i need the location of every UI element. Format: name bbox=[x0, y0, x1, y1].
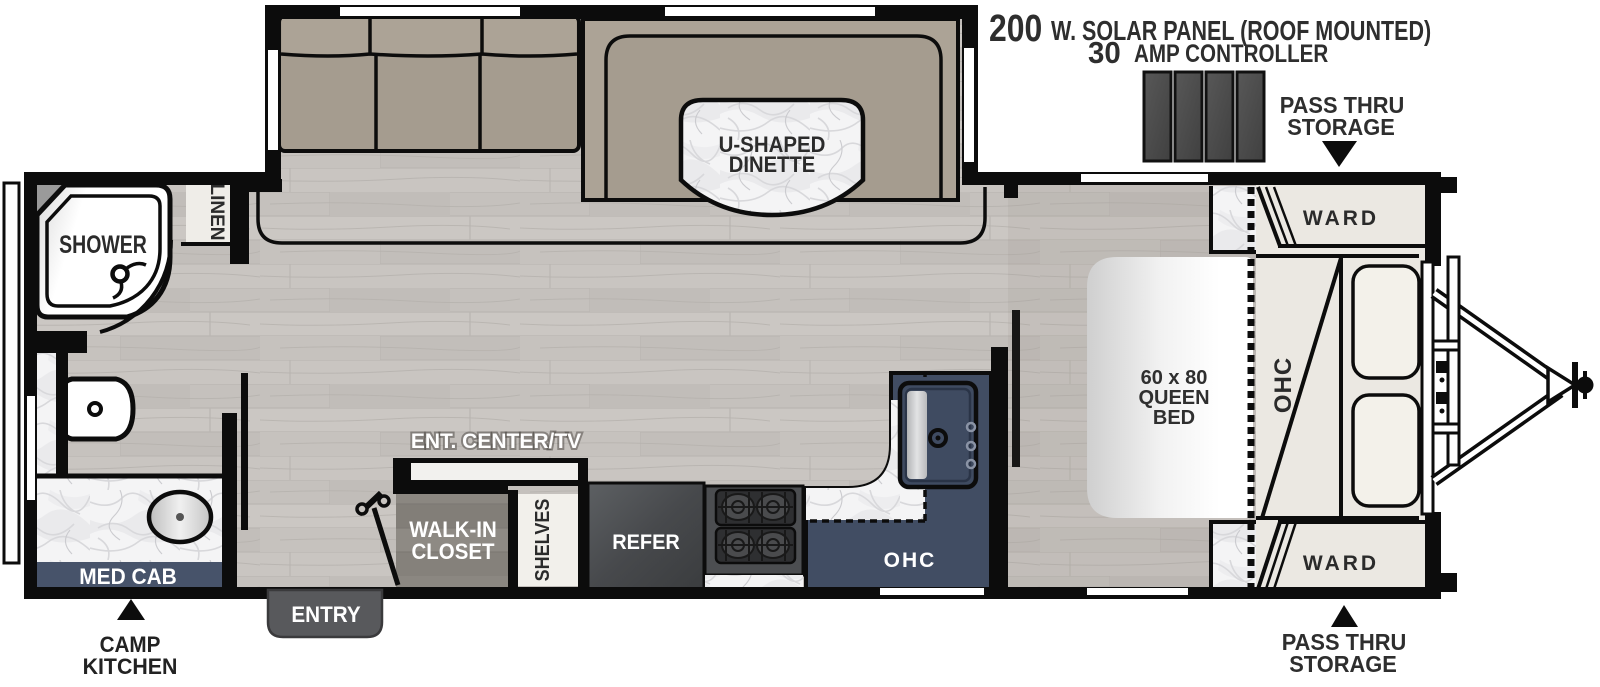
svg-text:AMP CONTROLLER: AMP CONTROLLER bbox=[1134, 39, 1329, 67]
svg-text:CLOSET: CLOSET bbox=[412, 539, 495, 564]
svg-text:MED CAB: MED CAB bbox=[79, 565, 176, 590]
svg-text:REFER: REFER bbox=[612, 531, 680, 555]
svg-text:200: 200 bbox=[989, 7, 1042, 49]
svg-text:SHELVES: SHELVES bbox=[532, 499, 554, 582]
svg-text:KITCHEN: KITCHEN bbox=[83, 654, 178, 679]
svg-text:OHC: OHC bbox=[1270, 357, 1297, 413]
svg-text:OHC: OHC bbox=[884, 549, 937, 572]
svg-text:SHOWER: SHOWER bbox=[59, 231, 147, 259]
svg-text:ENT. CENTER/TV: ENT. CENTER/TV bbox=[411, 430, 581, 453]
svg-text:STORAGE: STORAGE bbox=[1287, 114, 1395, 140]
svg-text:ENTRY: ENTRY bbox=[291, 602, 360, 627]
svg-text:BED: BED bbox=[1153, 407, 1195, 429]
svg-text:LINEN: LINEN bbox=[206, 184, 227, 241]
svg-text:DINETTE: DINETTE bbox=[729, 153, 816, 177]
svg-text:STORAGE: STORAGE bbox=[1289, 651, 1397, 677]
svg-text:30: 30 bbox=[1088, 36, 1121, 70]
svg-text:60 x 80: 60 x 80 bbox=[1141, 367, 1208, 389]
svg-text:QUEEN: QUEEN bbox=[1138, 387, 1209, 409]
svg-text:WARD: WARD bbox=[1303, 552, 1379, 575]
svg-text:WARD: WARD bbox=[1303, 207, 1379, 230]
